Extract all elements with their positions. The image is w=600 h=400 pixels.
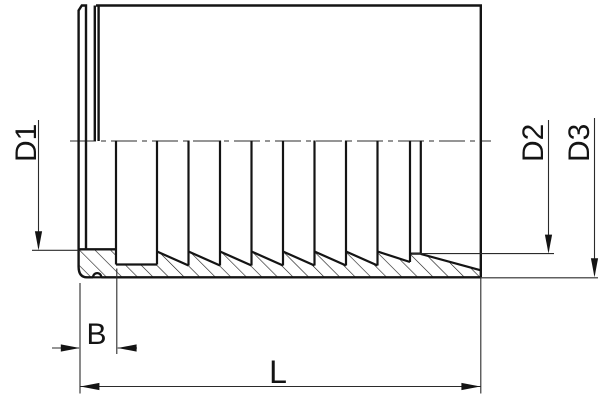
arrow-right-b — [61, 344, 80, 351]
ferrule-section-drawing: D1 D2 D3 B L — [0, 0, 600, 400]
arrow-down-d1 — [35, 231, 42, 250]
dimension-d2: D2 — [412, 120, 554, 254]
label-d2: D2 — [517, 124, 550, 162]
technical-drawing-canvas: D1 D2 D3 B L — [0, 0, 600, 400]
dimension-d1: D1 — [10, 120, 79, 250]
skive-notch — [93, 273, 101, 277]
arrow-down-d3 — [591, 258, 598, 277]
serration-teeth — [116, 141, 481, 271]
dimension-b: B — [52, 269, 137, 394]
dimension-l: L — [80, 278, 481, 394]
arrow-right-l — [461, 383, 480, 390]
arrow-left-b — [118, 344, 137, 351]
arrow-left-l — [80, 383, 99, 390]
label-d1: D1 — [10, 124, 43, 162]
label-l: L — [269, 354, 287, 390]
label-b: B — [86, 318, 106, 351]
arrow-down-d2 — [545, 235, 552, 254]
label-d3: D3 — [563, 124, 596, 162]
